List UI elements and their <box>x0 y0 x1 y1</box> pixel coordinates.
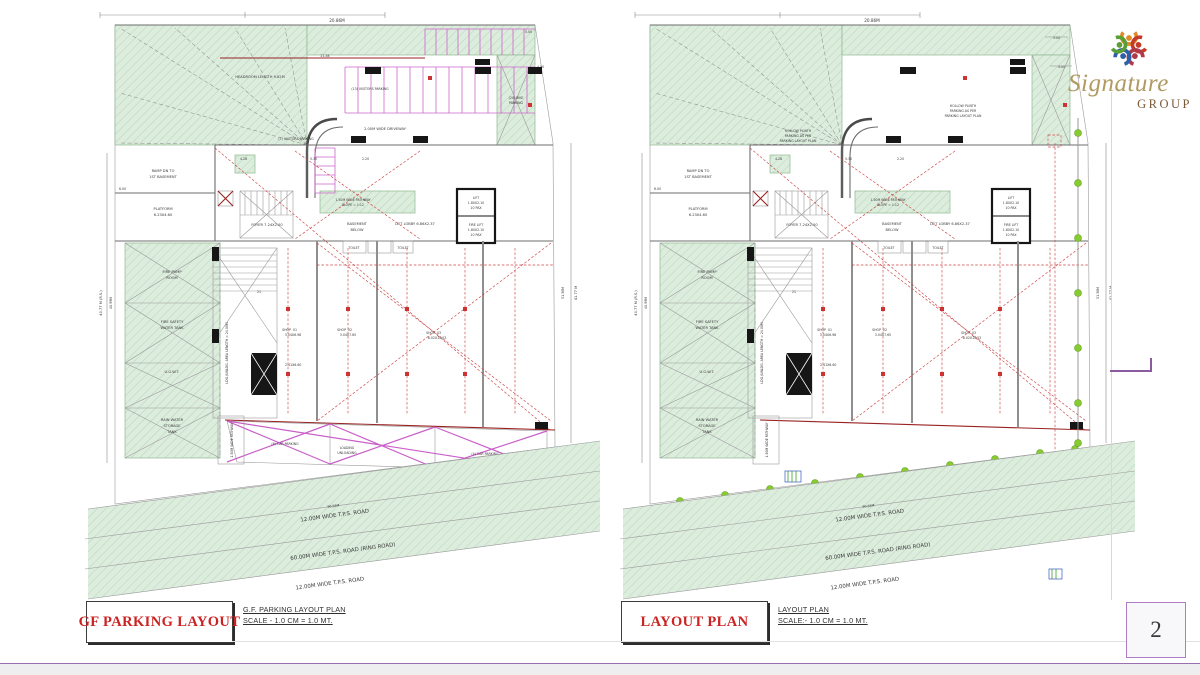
right-guide-line <box>1111 92 1112 600</box>
dim-530: 5.30 <box>310 157 317 161</box>
lift-label: LIFT <box>1008 196 1014 200</box>
lift-cap: 10 PAX <box>1005 206 1017 210</box>
visitors13-label: (13) VISITORS PARKING <box>351 87 389 91</box>
fire-lift-size: 1.80X2.10 <box>1003 228 1019 232</box>
rain-2: STORAGE <box>698 424 716 428</box>
right-plan-caption: LAYOUT PLAN SCALE:- 1.0 CM = 1.0 MT. <box>778 604 868 626</box>
lift-label: LIFT <box>473 196 479 200</box>
basement-2: BELOW <box>886 228 899 232</box>
fire-lift-label: FIRE LIFT <box>1004 223 1019 227</box>
purple-connector-end <box>1150 358 1152 372</box>
platform-label-2: 6.23X4.60 <box>154 213 173 217</box>
shop1-name: SHOP <box>817 328 826 332</box>
ramp-label-2: 1ST BASEMENT <box>149 175 177 179</box>
dim-top-label: 20.86M <box>329 18 345 23</box>
bike-label-2: PARKING <box>509 101 524 105</box>
driveway-label: 2.00M WIDE DRIVEWAY <box>364 127 407 131</box>
left-plan-caption: G.F. PARKING LAYOUT PLAN SCALE - 1.0 CM … <box>243 604 346 626</box>
lift-size: 1.80X2.10 <box>1003 201 1019 205</box>
logo-brand-text: Signature <box>1068 71 1192 96</box>
side-dim-right-2: 51.38M <box>1096 287 1100 299</box>
road-label-3: 12.00M WIDE T.P.S. ROAD <box>295 576 364 591</box>
basement-1: BASEMENT <box>347 222 368 226</box>
pathway-2: SLOPE = 1:12 <box>342 203 364 207</box>
lift-size: 1.80X2.10 <box>468 201 484 205</box>
right-caption-line: LAYOUT PLAN <box>778 604 868 615</box>
fire-pump-1: FIRE PUMP <box>162 270 182 274</box>
side-dim-left-1: 40.77 M (R.S.) <box>634 290 638 316</box>
logo-emblem-icon <box>1108 28 1150 68</box>
stair-size: 2.41X6.60 <box>820 363 836 367</box>
foyer-label: FOYER 7.24X2.00 <box>786 223 818 227</box>
stair-steps: 21 <box>792 290 796 294</box>
right-plan-title-box: LAYOUT PLAN <box>621 601 768 643</box>
ugwt-label: U.G.W.T. <box>700 370 715 374</box>
left-caption-line: G.F. PARKING LAYOUT PLAN <box>243 604 346 615</box>
shop2-name: SHOP <box>337 328 346 332</box>
basement-1: BASEMENT <box>882 222 903 226</box>
fire-pump-2: ROOM <box>166 276 177 280</box>
fire-tank-2: WATER TANK <box>160 326 184 330</box>
shop1-no: 01 <box>828 328 832 332</box>
hollow-1a: HOLLOW PLINTH <box>785 129 812 133</box>
pathway-2: SLOPE = 1:12 <box>877 203 899 207</box>
divider-hairline <box>232 641 1200 642</box>
drain-grate-icon <box>785 471 801 482</box>
ldg-label: LDG./UNLDG. AREA LENGTH = 24.00M <box>760 322 764 384</box>
cars6-label: (6) CAR PARKING <box>271 442 299 446</box>
road-band: 90.58M 12.00M WIDE T.P.S. ROAD 60.00M WI… <box>85 441 600 599</box>
lobby-label: LIFT LOBBY 6.86X2.37 <box>395 222 435 226</box>
basement-2: BELOW <box>351 228 364 232</box>
lobby-label: LIFT LOBBY 6.86X2.37 <box>930 222 970 226</box>
shop3-size: 8.02X10.03 <box>428 336 446 340</box>
dim-600: 6.00 <box>654 187 661 191</box>
fire-lift-cap: 10 PAX <box>1005 233 1017 237</box>
ramp-label-2: 1ST BASEMENT <box>684 175 712 179</box>
signature-group-logo: Signature GROUP <box>1068 28 1192 112</box>
shop1-name: SHOP <box>282 328 291 332</box>
shop1-size: 3.04X6.98 <box>820 333 836 337</box>
shop2-size: 3.04X7.65 <box>340 333 356 337</box>
fire-tank-2: WATER TANK <box>695 326 719 330</box>
dim-top-label: 20.86M <box>864 18 880 23</box>
side-dim-left-2: 40.99M <box>644 297 648 309</box>
left-scale-line: SCALE - 1.0 CM = 1.0 MT. <box>243 615 346 626</box>
shop3-no: 03 <box>972 331 976 335</box>
shop1-no: 01 <box>293 328 297 332</box>
shop2-name: SHOP <box>872 328 881 332</box>
rain-2: STORAGE <box>163 424 181 428</box>
hollow-3a: PARKING LAYOUT PLAN <box>780 139 817 143</box>
fire-lift-label: FIRE LIFT <box>469 223 484 227</box>
lift-cap: 10 PAX <box>470 206 482 210</box>
shop3-no: 03 <box>437 331 441 335</box>
side-dim-left-1: 40.77 M (R.S.) <box>99 290 103 316</box>
right-plan-title: LAYOUT PLAN <box>641 614 749 631</box>
hollow-2b: PARKING AS PER <box>950 109 977 113</box>
stair-steps: 21 <box>257 290 261 294</box>
hollow-1b: HOLLOW PLINTH <box>950 104 977 108</box>
side-dim-right-2: 51.38M <box>561 287 565 299</box>
platform-label-1: PLATFORM <box>688 207 707 211</box>
rain-3: TANK <box>701 430 712 434</box>
fire-pump-1: FIRE PUMP <box>697 270 717 274</box>
ldg-label: LDG./UNLDG. AREA LENGTH = 24.00M <box>225 322 229 384</box>
fire-lift-cap: 10 PAX <box>470 233 482 237</box>
toilet-label-1: TOILET <box>347 246 359 250</box>
ramp-label-1: RAMP DN TO <box>687 169 710 173</box>
footer-strip <box>0 664 1200 675</box>
dim-428: 4.28 <box>775 157 782 161</box>
shop3-name: SHOP <box>961 331 970 335</box>
shop2-size: 3.04X7.65 <box>875 333 891 337</box>
loading-label-2: UNLOADING <box>337 451 357 455</box>
dim-600: 6.00 <box>119 187 126 191</box>
purple-connector <box>1110 370 1152 372</box>
hollow-3b: PARKING LAYOUT PLAN <box>945 114 982 118</box>
slide: 20.86M 21.58 HEADROOM LENGTH 9.6 <box>0 0 1200 675</box>
left-plan-title-box: GF PARKING LAYOUT <box>86 601 233 643</box>
pathway-1: 1.50M WIDE PATHWAY <box>870 198 905 202</box>
dim-530: 5.30 <box>845 157 852 161</box>
foyer-label: FOYER 7.24X2.00 <box>251 223 283 227</box>
side-dim-right-1: 41.77 M <box>574 286 578 301</box>
rain-1: RAIN WATER <box>696 418 719 422</box>
page-number: 2 <box>1150 617 1162 643</box>
dim-500: 5.00 <box>525 30 532 34</box>
logo-group-text: GROUP <box>1068 97 1192 112</box>
shop3-size: 8.02X10.03 <box>963 336 981 340</box>
right-scale-line: SCALE:- 1.0 CM = 1.0 MT. <box>778 615 868 626</box>
shop2-no: 02 <box>883 328 887 332</box>
shop2-no: 02 <box>348 328 352 332</box>
rain-1: RAIN WATER <box>161 418 184 422</box>
dim-400: 4.00 <box>1058 65 1065 69</box>
drain-grate-icon <box>1049 569 1062 579</box>
pathway-1: 1.50M WIDE PATHWAY <box>335 198 370 202</box>
fire-lift-size: 1.80X2.10 <box>468 228 484 232</box>
fire-tank-1: FIRE SAFETY <box>696 320 719 324</box>
shop3-name: SHOP <box>426 331 435 335</box>
rain-3: TANK <box>166 430 177 434</box>
road-band: 90.58M 12.00M WIDE T.P.S. ROAD 60.00M WI… <box>620 441 1135 599</box>
loading-label-1: LOADING <box>340 446 355 450</box>
fire-pump-2: ROOM <box>701 276 712 280</box>
road-label-3: 12.00M WIDE T.P.S. ROAD <box>830 576 899 591</box>
gf-parking-plan: 20.86M 21.58 HEADROOM LENGTH 9.6 <box>85 3 600 603</box>
headroom-label: HEADROOM LENGTH 9.62M <box>235 75 284 79</box>
page-number-box: 2 <box>1126 602 1186 658</box>
visitors7-label: (7) VISITORS PARKING <box>278 137 314 141</box>
stair-size: 2.41X6.60 <box>285 363 301 367</box>
hollow-2a: PARKING AS PER <box>785 134 812 138</box>
pathway-box-label: 1.50M WIDE PATHWAY <box>230 422 234 457</box>
layout-plan: 20.86M HOLLOW PLINTH PARKING AS PER PARK… <box>620 3 1135 603</box>
dim-300: 3.00 <box>1053 36 1060 40</box>
ramp-label-1: RAMP DN TO <box>152 169 175 173</box>
pathway-box-label: 1.50M WIDE PATHWAY <box>765 422 769 457</box>
shop1-size: 3.04X6.98 <box>285 333 301 337</box>
dim-220: 2.20 <box>362 157 369 161</box>
left-plan-title: GF PARKING LAYOUT <box>79 614 241 631</box>
ugwt-label: U.G.W.T. <box>165 370 180 374</box>
platform-label-1: PLATFORM <box>153 207 172 211</box>
dim-2158: 21.58 <box>320 54 329 58</box>
bike-label-1: (20) BIKE <box>509 96 524 100</box>
dim-220: 2.20 <box>897 157 904 161</box>
toilet-label-1: TOILET <box>882 246 894 250</box>
dim-428: 4.28 <box>240 157 247 161</box>
platform-label-2: 6.23X4.60 <box>689 213 708 217</box>
side-dim-left-2: 40.99M <box>109 297 113 309</box>
fire-tank-1: FIRE SAFETY <box>161 320 184 324</box>
